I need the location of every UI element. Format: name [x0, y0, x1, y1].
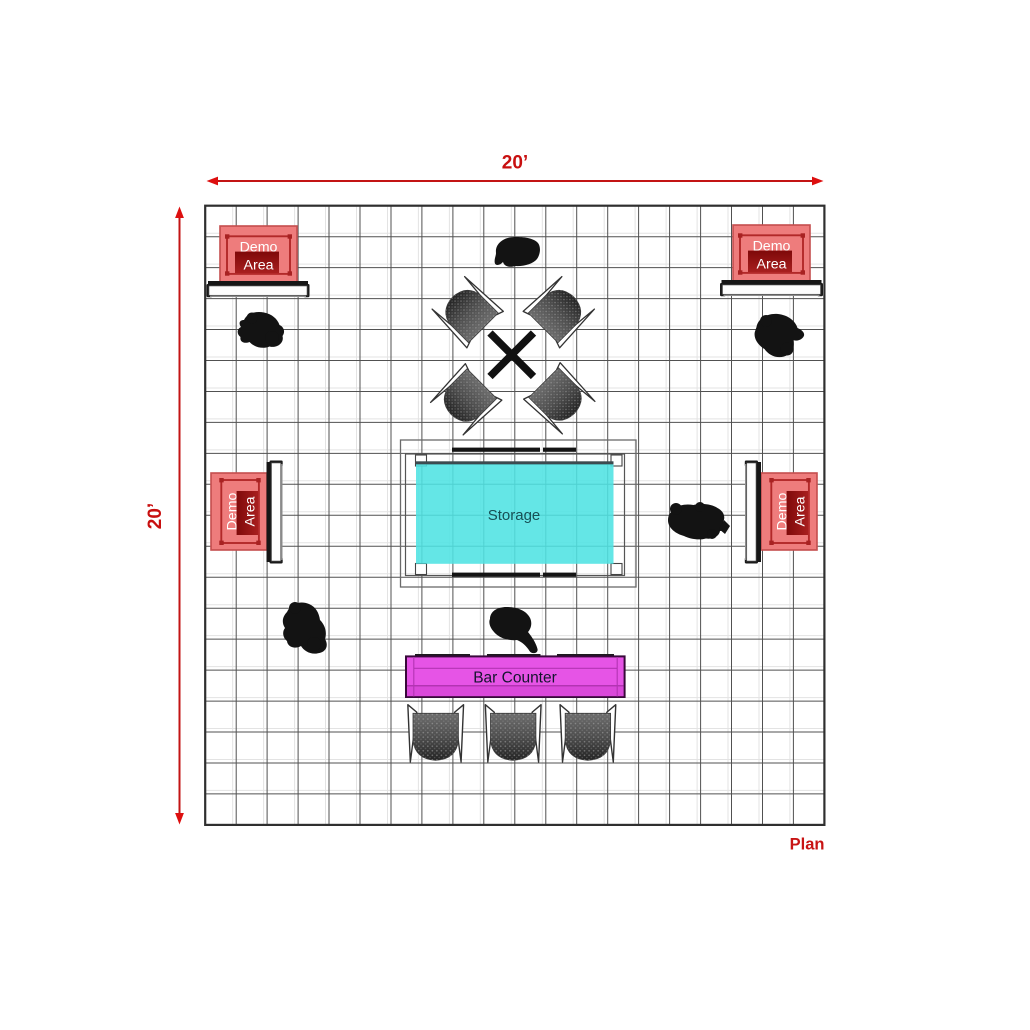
svg-text:Bar Counter: Bar Counter — [473, 670, 557, 687]
svg-text:Plan: Plan — [790, 836, 825, 854]
svg-text:Storage: Storage — [488, 507, 541, 524]
svg-text:20’: 20’ — [145, 503, 166, 529]
svg-text:20’: 20’ — [502, 153, 528, 174]
